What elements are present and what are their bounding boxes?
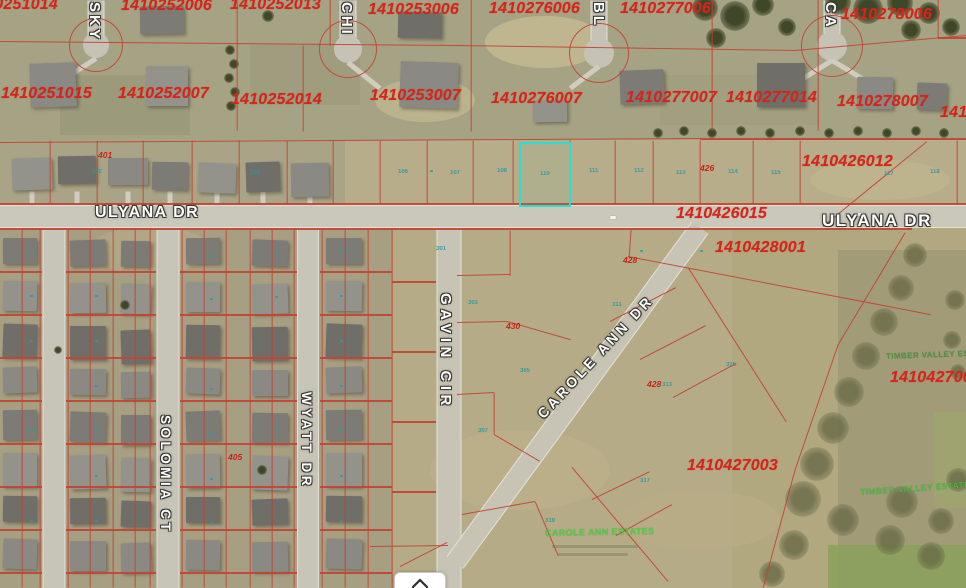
- lot-number-label: 303: [468, 300, 478, 306]
- lot-mark: [700, 250, 703, 252]
- parcel-line: [799, 141, 800, 205]
- parcel-line: [49, 141, 50, 205]
- parcel-line: [180, 314, 297, 315]
- parcel-id-label: 1410253007: [370, 87, 461, 105]
- parcel-id-label: 1410251014: [0, 0, 58, 14]
- parcel-line: [66, 314, 156, 315]
- lot-mark: [95, 250, 98, 252]
- parcel-ref-label: 426: [700, 163, 714, 173]
- lot-mark: [340, 385, 343, 387]
- parcel-line: [293, 229, 294, 588]
- parcel-id-label: 1410277014: [726, 89, 817, 107]
- brush: [945, 290, 965, 310]
- brush: [943, 331, 961, 349]
- parcel-ref-label: 428: [623, 255, 637, 265]
- house: [152, 162, 188, 191]
- house: [245, 161, 280, 192]
- parcel-line: [344, 229, 345, 588]
- faint-text: [558, 553, 628, 556]
- brush: [779, 530, 809, 560]
- parcel-line: [614, 141, 615, 205]
- lot-mark: [95, 430, 98, 432]
- lot-mark: [30, 295, 33, 297]
- parcel-line: [67, 229, 68, 588]
- parcel-line: [652, 141, 653, 205]
- map-viewport[interactable]: 1021041061071081101111121131141151171183…: [0, 0, 966, 588]
- parcel-line: [0, 228, 912, 229]
- parcel-line: [180, 271, 297, 272]
- lot-mark: [95, 295, 98, 297]
- house: [11, 157, 52, 190]
- parcel-line: [225, 229, 226, 588]
- house: [121, 241, 151, 268]
- tree: [824, 128, 834, 138]
- house: [252, 542, 289, 573]
- lot-mark: [640, 250, 643, 252]
- parcel-id-label: 1410426012: [802, 153, 893, 171]
- lot-number-label: 111: [589, 168, 598, 174]
- tree: [653, 128, 663, 138]
- parcel-line: [0, 357, 42, 358]
- lot-mark: [95, 520, 98, 522]
- lot-mark: [275, 252, 278, 254]
- parcel-id-label: 1410278007: [837, 93, 928, 111]
- parcel-id-label: 1410251015: [1, 85, 92, 103]
- street-name-label: CA: [822, 2, 839, 30]
- parcel-line: [367, 229, 368, 588]
- subdivision-name-label: CAROLE ANN ESTATES: [545, 526, 655, 538]
- parcel-line: [472, 141, 473, 205]
- parcel-line: [700, 138, 966, 139]
- parcel-id-label: 1410276006: [489, 0, 580, 18]
- road-west-street: [43, 228, 66, 588]
- chevron-up-icon: [409, 576, 431, 588]
- street-name-label: SKY: [86, 2, 103, 42]
- parcel-line: [320, 314, 392, 315]
- parcel-line: [320, 400, 392, 401]
- parcel-id-label: 1410252014: [231, 91, 322, 109]
- lot-number-label: 315: [726, 362, 736, 368]
- parcel-line: [321, 229, 322, 588]
- house: [197, 162, 236, 193]
- parcel-line: [512, 141, 513, 205]
- parcel-line: [66, 529, 156, 530]
- brush: [834, 377, 864, 407]
- lot-number-label: 112: [634, 168, 644, 174]
- street-name-label: CHI: [338, 2, 355, 37]
- lot-mark: [340, 430, 343, 432]
- lot-number-label: 104: [250, 170, 260, 176]
- parcel-line: [39, 229, 40, 588]
- house: [69, 454, 106, 489]
- parcel-line: [286, 141, 287, 205]
- parcel-line: [493, 393, 494, 435]
- lot-mark: [275, 296, 278, 298]
- lot-number-label: 317: [640, 478, 650, 484]
- tree: [679, 126, 689, 136]
- parcel-line: [320, 271, 392, 272]
- parcel-line: [470, 0, 471, 132]
- parcel-line: [89, 229, 90, 588]
- parcel-line: [392, 281, 436, 282]
- parcel-line: [149, 229, 150, 588]
- parcel-line: [0, 314, 42, 315]
- parcel-id-label: 1410252013: [230, 0, 321, 14]
- parcel-id-label: 1410253006: [368, 1, 459, 19]
- tree: [795, 126, 805, 136]
- parcel-line: [320, 572, 392, 573]
- parcel-id-label: 141: [940, 104, 966, 122]
- parcel-id-label: 1410252007: [118, 85, 209, 103]
- parcel-line: [180, 529, 297, 530]
- tree: [225, 45, 235, 55]
- parcel-id-label: 1410427006: [890, 369, 966, 387]
- parcel-line: [937, 0, 938, 38]
- brush: [870, 308, 898, 336]
- parcel-id-label: 1410426015: [676, 205, 767, 223]
- parcel-line: [66, 443, 156, 444]
- parcel-line: [392, 421, 436, 422]
- lot-number-label: 307: [478, 428, 488, 434]
- parcel-line: [142, 141, 143, 205]
- house: [3, 410, 38, 441]
- tree: [736, 126, 746, 136]
- lot-number-label: 114: [728, 169, 738, 175]
- parcel-line: [0, 271, 42, 272]
- house: [70, 369, 106, 396]
- lot-mark: [340, 520, 343, 522]
- house: [70, 498, 106, 525]
- parcel-line: [320, 357, 392, 358]
- parcel-line: [392, 491, 436, 492]
- lot-mark: [340, 340, 343, 342]
- parcel-line: [180, 572, 297, 573]
- lot-mark: [210, 478, 213, 480]
- lot-number-label: 319: [545, 518, 555, 524]
- street-name-label: SOLOMIA CT: [158, 415, 173, 534]
- parcel-line: [66, 357, 156, 358]
- parcel-line: [66, 486, 156, 487]
- tree: [911, 126, 921, 136]
- lot-number-label: 117: [884, 171, 894, 177]
- house: [120, 329, 151, 364]
- parcel-id-label: 1410428001: [715, 239, 806, 257]
- brush: [903, 243, 927, 267]
- house: [121, 415, 151, 445]
- parcel-ref-label: 401: [98, 150, 112, 160]
- lot-mark: [430, 170, 433, 172]
- parcel-line: [332, 141, 333, 205]
- lot-mark: [210, 432, 213, 434]
- house: [252, 370, 288, 396]
- parcel-line: [956, 141, 957, 205]
- brush: [800, 447, 834, 481]
- lot-mark: [275, 430, 278, 432]
- parcel-id-label: 1410427003: [687, 457, 778, 475]
- parcel-line: [302, 46, 303, 132]
- parcel-line: [180, 400, 297, 401]
- tree: [720, 1, 750, 31]
- street-name-label: ULYANA DR: [95, 204, 199, 222]
- brush: [928, 508, 954, 534]
- lot-number-label: 313: [662, 382, 672, 388]
- parcel-line: [180, 357, 297, 358]
- parcel-line: [426, 141, 427, 205]
- culdesac-parcel-arc: [569, 23, 629, 83]
- house: [58, 156, 96, 185]
- house: [70, 283, 107, 314]
- parcel-line: [180, 443, 297, 444]
- tree: [778, 18, 796, 36]
- tree: [54, 346, 62, 354]
- lot-mark: [210, 388, 213, 390]
- parcel-line: [711, 0, 712, 131]
- parcel-line: [249, 229, 250, 588]
- parcel-line: [181, 229, 182, 588]
- parcel-line: [134, 229, 135, 588]
- lot-mark: [340, 295, 343, 297]
- lot-mark: [30, 520, 33, 522]
- brush: [917, 542, 945, 570]
- terrain-patch: [934, 412, 966, 508]
- brush: [852, 342, 880, 370]
- lot-mark: [340, 250, 343, 252]
- parcel-line: [66, 572, 156, 573]
- lot-number-label: 113: [676, 170, 686, 176]
- parcel-line: [391, 229, 392, 588]
- faint-text: [552, 545, 638, 548]
- parcel-line: [938, 37, 966, 38]
- tree: [939, 128, 949, 138]
- tree: [257, 465, 267, 475]
- parcel-line: [379, 141, 380, 205]
- lot-mark: [95, 385, 98, 387]
- parcel-line: [0, 529, 42, 530]
- parcel-line: [112, 229, 113, 588]
- parcel-ref-label: 405: [228, 452, 242, 462]
- parcel-line: [752, 141, 753, 205]
- parcel-ref-label: 430: [506, 321, 520, 331]
- house: [70, 541, 106, 571]
- lot-number-label: 305: [520, 368, 530, 374]
- lot-number-label: 107: [450, 170, 460, 176]
- lot-mark: [30, 250, 33, 252]
- lot-mark: [210, 255, 213, 257]
- house: [251, 283, 288, 314]
- house: [252, 239, 289, 266]
- lot-number-label: 115: [771, 170, 781, 176]
- parcel-line: [0, 443, 42, 444]
- parcel-line: [0, 400, 42, 401]
- parcel-id-label: 1410276007: [491, 90, 582, 108]
- parcel-id-label: 1410278006: [841, 6, 932, 24]
- house: [251, 455, 288, 490]
- lot-number-label: 311: [612, 302, 622, 308]
- lot-number-label: 301: [436, 246, 446, 252]
- street-name-label: WYATT DR: [299, 392, 314, 489]
- house: [70, 326, 106, 360]
- lot-mark: [340, 475, 343, 477]
- tree: [882, 128, 892, 138]
- house: [121, 372, 151, 399]
- parcel-line: [191, 141, 192, 205]
- street-name-label: BL: [590, 2, 607, 28]
- parcel-line: [0, 486, 42, 487]
- lot-number-label: 108: [497, 168, 507, 174]
- parcel-id-label: 1410277007: [626, 89, 717, 107]
- tree: [765, 128, 775, 138]
- lot-number-label: 102: [92, 169, 102, 175]
- lot-mark: [95, 475, 98, 477]
- parcel-line: [320, 443, 392, 444]
- house: [70, 239, 107, 266]
- brush: [817, 412, 849, 444]
- parcel-line: [66, 271, 156, 272]
- house: [121, 500, 152, 527]
- parcel-line: [0, 572, 42, 573]
- house: [291, 163, 330, 198]
- parcel-line: [238, 141, 239, 205]
- vehicle: [610, 216, 616, 219]
- parcel-line: [392, 351, 436, 352]
- parcel-line: [320, 529, 392, 530]
- tree: [942, 18, 960, 36]
- brush: [827, 504, 859, 536]
- house: [3, 366, 38, 393]
- house: [120, 542, 151, 573]
- house: [69, 411, 106, 442]
- tree: [853, 126, 863, 136]
- parcel-id-label: 1410252006: [121, 0, 212, 15]
- lot-mark: [210, 522, 213, 524]
- street-name-label: GAVIN CIR: [437, 293, 454, 410]
- parcel-line: [66, 400, 156, 401]
- brush: [875, 525, 905, 555]
- tree: [120, 300, 130, 310]
- street-name-label: ULYANA DR: [822, 211, 932, 231]
- map-expand-button[interactable]: [394, 572, 446, 588]
- parcel-line: [203, 229, 204, 588]
- brush: [888, 275, 914, 301]
- lot-mark: [210, 298, 213, 300]
- tree: [706, 28, 726, 48]
- house: [252, 327, 289, 362]
- parcel-line: [180, 486, 297, 487]
- house: [252, 498, 289, 525]
- lot-number-label: 118: [930, 169, 940, 175]
- parcel-line: [236, 0, 237, 131]
- house: [3, 496, 37, 523]
- lot-mark: [30, 340, 33, 342]
- lot-mark: [30, 430, 33, 432]
- parcel-ref-label: 428: [647, 379, 661, 389]
- house: [3, 453, 37, 487]
- house: [252, 413, 289, 444]
- lot-number-label: 106: [398, 169, 408, 175]
- house: [2, 538, 37, 569]
- lot-mark: [95, 340, 98, 342]
- tree: [224, 73, 234, 83]
- parcel-line: [21, 229, 22, 588]
- parcel-line: [320, 486, 392, 487]
- lot-number-label: 110: [540, 171, 550, 177]
- parcel-id-label: 1410277006: [620, 0, 711, 18]
- parcel-line: [271, 229, 272, 588]
- parcel-line: [509, 231, 510, 276]
